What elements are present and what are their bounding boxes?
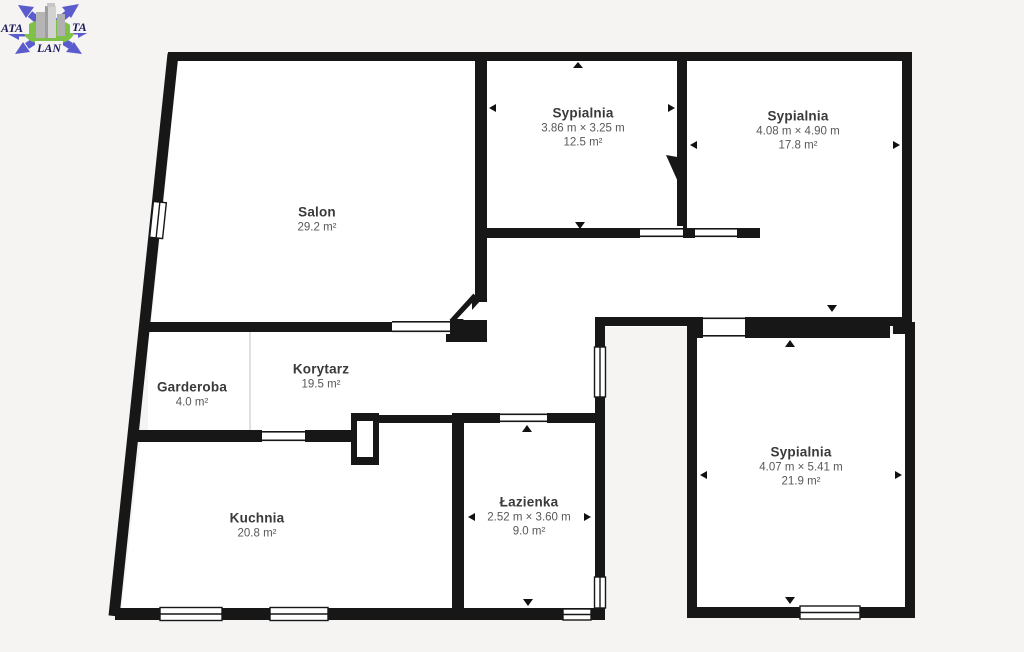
wall-right-upper — [902, 52, 912, 325]
window-lazienka-right — [595, 577, 606, 608]
wall-right-lower — [905, 330, 915, 618]
door-opening-sypialnia-3 — [703, 315, 745, 339]
wall-korytarz-south — [377, 415, 454, 423]
door-opening-lazienka — [500, 411, 547, 424]
floor-plan: ATA TA LAN Salon 29.2 m² Sypialnia 3.86 … — [0, 0, 1024, 652]
window-kuchnia-2 — [270, 608, 328, 621]
wall-corridor-south — [595, 317, 912, 326]
logo-text-left: ATA — [0, 21, 23, 35]
wall-top — [168, 52, 912, 61]
floor-plan-drawing: ATA TA LAN — [0, 0, 1024, 652]
window-sypialnia-3 — [800, 606, 860, 619]
corridor-floor — [482, 233, 760, 327]
door-opening-salon — [392, 320, 450, 334]
window-korytarz-shaft — [595, 347, 606, 397]
sypialnia-3-floor — [692, 333, 910, 612]
window-lazienka-bottom — [563, 609, 591, 620]
wall-sypialnia3-left — [687, 326, 697, 618]
door-opening-sypialnia-2 — [695, 226, 737, 240]
wall-lazienka-left — [452, 413, 464, 618]
window-kuchnia-1 — [160, 608, 222, 621]
wall-salon-bottom — [149, 322, 392, 332]
agency-logo: ATA TA LAN — [0, 3, 91, 55]
kuchnia-floor — [121, 437, 458, 614]
door-opening-kuchnia — [262, 428, 305, 443]
wall-bedroom-divider — [677, 61, 687, 238]
sypialnia-1-floor — [482, 61, 682, 233]
logo-buildings-icon — [36, 3, 65, 38]
logo-text-bottom: LAN — [36, 41, 62, 55]
salon-floor — [150, 61, 487, 337]
window-salon-left — [150, 201, 167, 238]
duct-inner — [357, 421, 373, 457]
logo-text-right: TA — [72, 20, 87, 34]
door-opening-sypialnia-1 — [640, 226, 683, 240]
wall-kuchnia-top — [131, 430, 353, 442]
wall-salon-right — [475, 56, 487, 302]
lazienka-floor — [458, 418, 598, 614]
